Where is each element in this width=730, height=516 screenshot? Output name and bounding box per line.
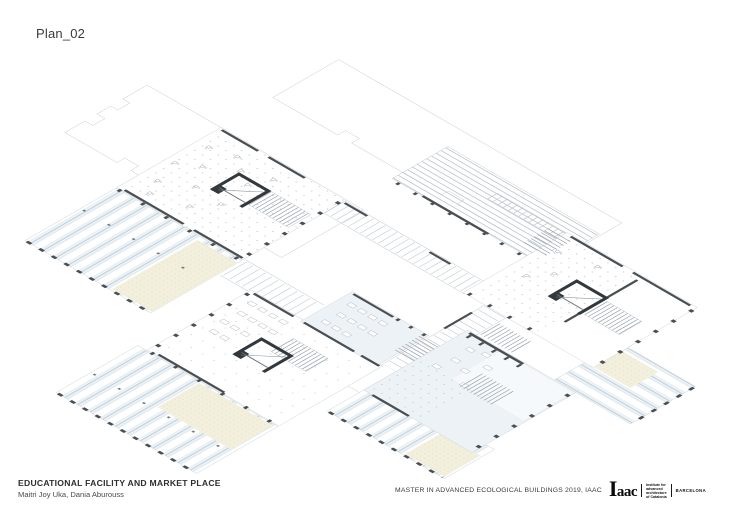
project-title: EDUCATIONAL FACILITY AND MARKET PLACE [18,478,221,488]
project-authors: Maitri Joy Uka, Dania Aburouss [18,490,221,499]
iaac-logo: Iaac Institute for advanced architecture… [609,480,706,501]
presentation-sheet: Plan_02 [0,0,730,516]
iaac-wordmark: Iaac [609,480,637,501]
logo-subtitle: Institute for advanced architecture of C… [646,483,667,499]
module-b-floor [463,233,697,368]
logo-city: BARCELONA [676,488,706,493]
program-title: MASTER IN ADVANCED ECOLOGICAL BUILDINGS … [395,487,602,494]
footer-project-block: EDUCATIONAL FACILITY AND MARKET PLACE Ma… [18,478,221,499]
logo-divider [641,484,642,497]
plan-drawing [0,0,730,516]
logo-divider [671,484,672,497]
footer-program-block: MASTER IN ADVANCED ECOLOGICAL BUILDINGS … [395,480,706,501]
